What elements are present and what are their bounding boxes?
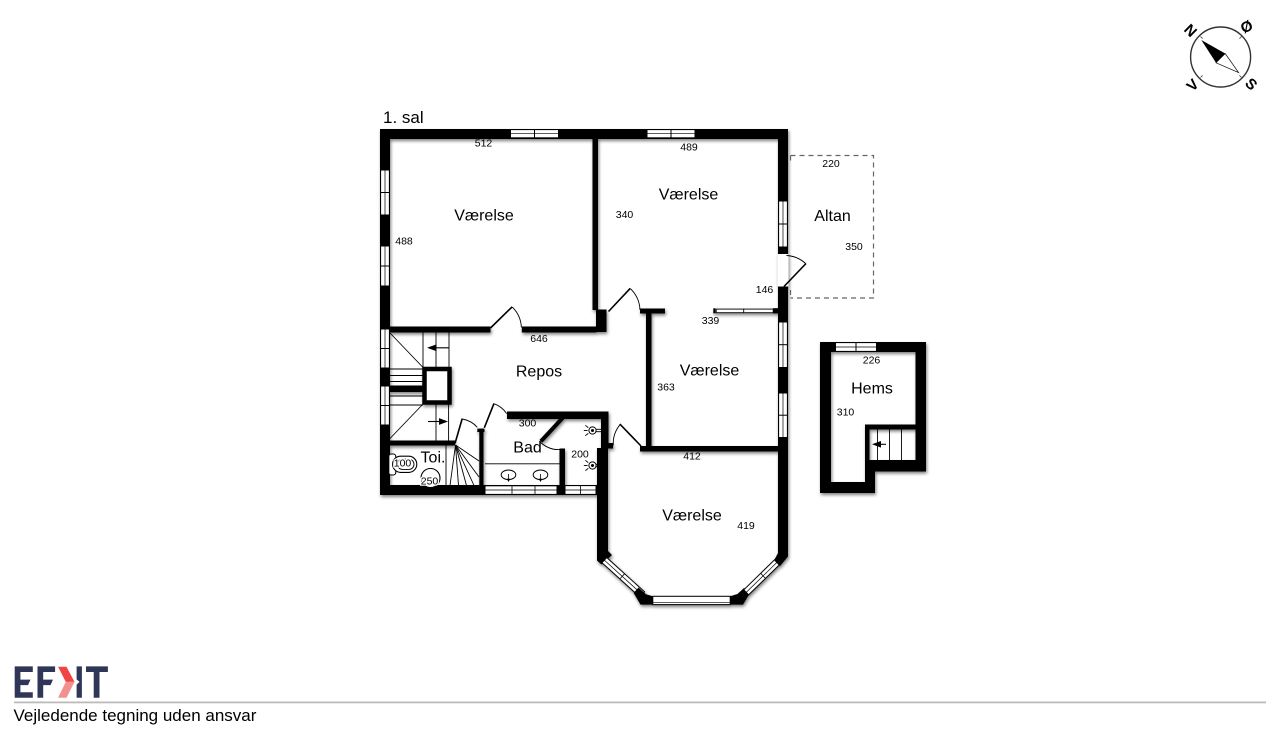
svg-text:646: 646 [530,333,548,345]
svg-text:350: 350 [845,241,863,253]
svg-text:300: 300 [519,418,537,430]
svg-text:Toi.: Toi. [421,450,446,467]
svg-text:339: 339 [702,315,720,327]
svg-text:488: 488 [395,236,413,248]
svg-text:Værelse: Værelse [659,187,719,204]
svg-text:Vejledende tegning uden ansvar: Vejledende tegning uden ansvar [14,706,257,725]
svg-text:200: 200 [571,449,589,461]
svg-text:146: 146 [756,284,774,296]
svg-text:220: 220 [822,158,840,170]
svg-text:Værelse: Værelse [454,208,514,225]
svg-text:100: 100 [394,458,412,470]
svg-text:419: 419 [737,520,755,532]
svg-text:Værelse: Værelse [662,508,722,525]
svg-text:S: S [1241,75,1260,94]
svg-text:489: 489 [680,142,698,154]
svg-text:412: 412 [683,451,701,463]
svg-text:310: 310 [837,407,855,419]
svg-text:Altan: Altan [814,208,850,225]
svg-text:340: 340 [616,209,634,221]
svg-text:Bad: Bad [513,440,541,457]
svg-text:226: 226 [863,355,881,367]
svg-text:Værelse: Værelse [680,363,740,380]
svg-text:363: 363 [657,382,675,394]
svg-text:Repos: Repos [516,364,562,381]
svg-text:Hems: Hems [851,381,893,398]
svg-text:250: 250 [421,476,439,488]
svg-text:1. sal: 1. sal [383,108,424,127]
svg-text:512: 512 [475,138,493,150]
